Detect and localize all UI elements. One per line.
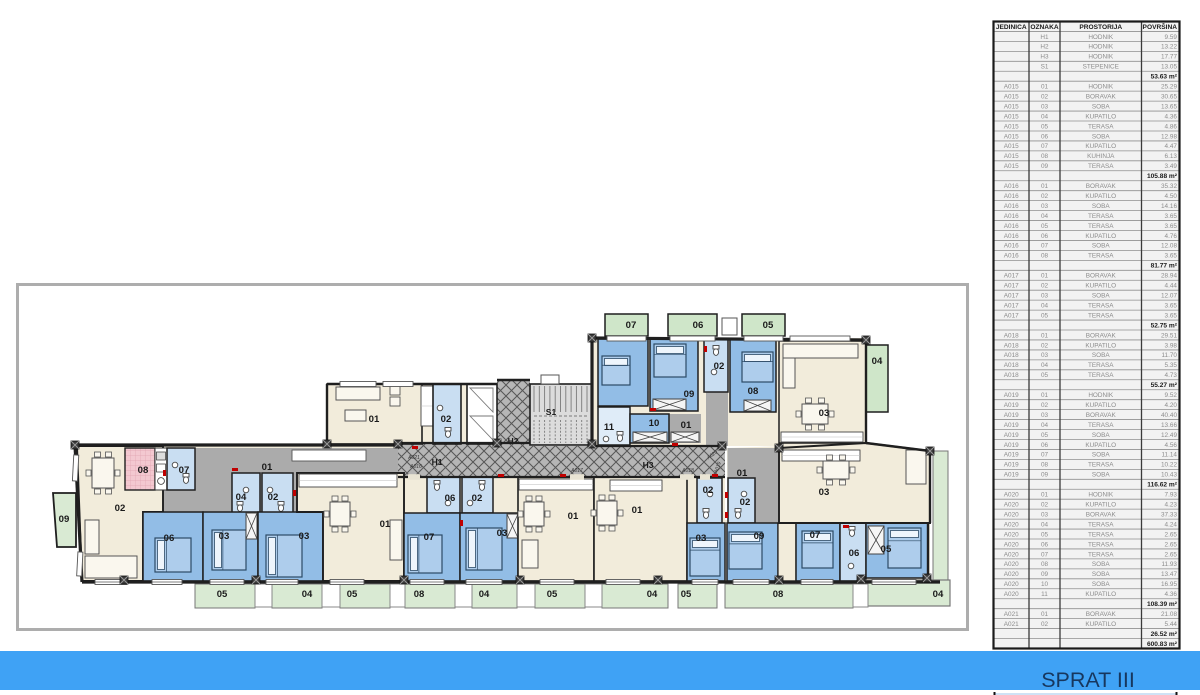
svg-text:12.49: 12.49 — [1161, 432, 1177, 439]
svg-text:A016: A016 — [1004, 243, 1019, 250]
svg-text:HODNIK: HODNIK — [1088, 392, 1114, 399]
svg-text:03: 03 — [1041, 511, 1049, 518]
svg-text:4.56: 4.56 — [1165, 442, 1178, 449]
svg-text:A021: A021 — [1004, 621, 1019, 628]
svg-text:7.93: 7.93 — [1165, 492, 1178, 499]
svg-text:53.63 m²: 53.63 m² — [1151, 74, 1178, 81]
svg-text:TERASA: TERASA — [1088, 312, 1114, 319]
svg-text:02: 02 — [1041, 93, 1049, 100]
svg-text:TERASA: TERASA — [1088, 253, 1114, 260]
svg-text:5.44: 5.44 — [1165, 621, 1178, 628]
svg-text:A020: A020 — [1004, 561, 1019, 568]
svg-text:TERASA: TERASA — [1088, 372, 1114, 379]
svg-text:KUPATILO: KUPATILO — [1085, 143, 1116, 150]
svg-text:A019: A019 — [1004, 412, 1019, 419]
svg-text:25.29: 25.29 — [1161, 84, 1177, 91]
svg-text:BORAVAK: BORAVAK — [1086, 183, 1117, 190]
svg-text:01: 01 — [1041, 492, 1049, 499]
svg-text:02: 02 — [1041, 621, 1049, 628]
svg-text:35.32: 35.32 — [1161, 183, 1177, 190]
svg-text:4.36: 4.36 — [1165, 113, 1178, 120]
svg-text:A018: A018 — [1004, 342, 1019, 349]
svg-text:TERASA: TERASA — [1088, 521, 1114, 528]
svg-text:SOBA: SOBA — [1092, 472, 1110, 479]
svg-text:02: 02 — [1041, 283, 1049, 290]
svg-text:01: 01 — [1041, 332, 1049, 339]
svg-text:POVRŠINA: POVRŠINA — [1143, 22, 1178, 31]
svg-text:A015: A015 — [1004, 163, 1019, 170]
svg-text:BORAVAK: BORAVAK — [1086, 332, 1117, 339]
svg-text:A016: A016 — [1004, 193, 1019, 200]
svg-text:A016: A016 — [1004, 213, 1019, 220]
svg-text:KUPATILO: KUPATILO — [1085, 113, 1116, 120]
svg-text:TERASA: TERASA — [1088, 223, 1114, 230]
svg-text:52.75 m²: 52.75 m² — [1151, 322, 1178, 329]
svg-text:A020: A020 — [1004, 511, 1019, 518]
svg-text:HODNIK: HODNIK — [1088, 84, 1114, 91]
svg-text:3.65: 3.65 — [1165, 213, 1178, 220]
svg-text:05: 05 — [1041, 531, 1049, 538]
svg-text:05: 05 — [1041, 432, 1049, 439]
svg-text:BORAVAK: BORAVAK — [1086, 273, 1117, 280]
svg-text:A016: A016 — [1004, 253, 1019, 260]
svg-text:A016: A016 — [1004, 223, 1019, 230]
svg-text:SOBA: SOBA — [1092, 452, 1110, 459]
svg-text:A019: A019 — [1004, 462, 1019, 469]
svg-text:KUPATILO: KUPATILO — [1085, 621, 1116, 628]
svg-text:05: 05 — [1041, 223, 1049, 230]
svg-text:9.52: 9.52 — [1165, 392, 1178, 399]
svg-text:105.88 m²: 105.88 m² — [1147, 173, 1178, 180]
svg-text:4.20: 4.20 — [1165, 402, 1178, 409]
svg-text:SOBA: SOBA — [1092, 561, 1110, 568]
svg-text:6.13: 6.13 — [1165, 153, 1178, 160]
svg-text:BORAVAK: BORAVAK — [1086, 611, 1117, 618]
svg-text:13.47: 13.47 — [1161, 571, 1177, 578]
svg-text:13.65: 13.65 — [1161, 103, 1177, 110]
svg-text:SOBA: SOBA — [1092, 103, 1110, 110]
svg-text:01: 01 — [1041, 611, 1049, 618]
svg-text:07: 07 — [1041, 143, 1049, 150]
svg-text:A019: A019 — [1004, 432, 1019, 439]
svg-text:12.08: 12.08 — [1161, 243, 1177, 250]
svg-text:28.94: 28.94 — [1161, 273, 1177, 280]
svg-text:TERASA: TERASA — [1088, 362, 1114, 369]
svg-text:04: 04 — [1041, 213, 1049, 220]
svg-text:A019: A019 — [1004, 402, 1019, 409]
svg-text:A018: A018 — [1004, 372, 1019, 379]
svg-text:07: 07 — [1041, 551, 1049, 558]
svg-text:A021: A021 — [1004, 611, 1019, 618]
svg-text:KUPATILO: KUPATILO — [1085, 233, 1116, 240]
svg-text:40.40: 40.40 — [1161, 412, 1177, 419]
svg-text:13.66: 13.66 — [1161, 422, 1177, 429]
svg-text:A018: A018 — [1004, 332, 1019, 339]
svg-text:37.33: 37.33 — [1161, 511, 1177, 518]
svg-text:A016: A016 — [1004, 203, 1019, 210]
svg-text:A020: A020 — [1004, 521, 1019, 528]
svg-text:108.39 m²: 108.39 m² — [1147, 601, 1178, 608]
svg-text:A020: A020 — [1004, 492, 1019, 499]
svg-text:SOBA: SOBA — [1092, 293, 1110, 300]
svg-text:04: 04 — [1041, 113, 1049, 120]
svg-text:A020: A020 — [1004, 581, 1019, 588]
svg-text:TERASA: TERASA — [1088, 462, 1114, 469]
svg-text:A015: A015 — [1004, 123, 1019, 130]
svg-text:16.95: 16.95 — [1161, 581, 1177, 588]
svg-text:KUPATILO: KUPATILO — [1085, 591, 1116, 598]
svg-text:KUPATILO: KUPATILO — [1085, 283, 1116, 290]
svg-text:02: 02 — [1041, 402, 1049, 409]
svg-text:06: 06 — [1041, 133, 1049, 140]
svg-text:01: 01 — [1041, 392, 1049, 399]
svg-text:PROSTORIJA: PROSTORIJA — [1079, 24, 1122, 31]
svg-text:KUHINJA: KUHINJA — [1087, 153, 1115, 160]
svg-text:SOBA: SOBA — [1092, 571, 1110, 578]
svg-text:3.65: 3.65 — [1165, 312, 1178, 319]
svg-text:HODNIK: HODNIK — [1088, 34, 1114, 41]
svg-text:08: 08 — [1041, 462, 1049, 469]
svg-text:BORAVAK: BORAVAK — [1086, 412, 1117, 419]
svg-text:03: 03 — [1041, 103, 1049, 110]
svg-text:01: 01 — [1041, 183, 1049, 190]
svg-text:HODNIK: HODNIK — [1088, 492, 1114, 499]
svg-text:4.86: 4.86 — [1165, 123, 1178, 130]
svg-text:SOBA: SOBA — [1092, 432, 1110, 439]
svg-text:05: 05 — [1041, 372, 1049, 379]
svg-text:A020: A020 — [1004, 551, 1019, 558]
svg-text:A016: A016 — [1004, 183, 1019, 190]
svg-text:03: 03 — [1041, 203, 1049, 210]
svg-text:BORAVAK: BORAVAK — [1086, 511, 1117, 518]
svg-text:11.93: 11.93 — [1161, 561, 1177, 568]
svg-text:SOBA: SOBA — [1092, 243, 1110, 250]
svg-text:A017: A017 — [1004, 302, 1019, 309]
svg-text:04: 04 — [1041, 362, 1049, 369]
svg-text:TERASA: TERASA — [1088, 541, 1114, 548]
svg-text:01: 01 — [1041, 273, 1049, 280]
svg-text:9.59: 9.59 — [1165, 34, 1178, 41]
svg-text:21.08: 21.08 — [1161, 611, 1177, 618]
svg-text:A015: A015 — [1004, 153, 1019, 160]
svg-text:26.52 m²: 26.52 m² — [1151, 631, 1178, 638]
svg-text:06: 06 — [1041, 233, 1049, 240]
svg-text:02: 02 — [1041, 501, 1049, 508]
svg-text:10.22: 10.22 — [1161, 462, 1177, 469]
svg-text:02: 02 — [1041, 193, 1049, 200]
svg-text:04: 04 — [1041, 422, 1049, 429]
svg-text:A015: A015 — [1004, 103, 1019, 110]
svg-text:4.50: 4.50 — [1165, 193, 1178, 200]
svg-text:116.62 m²: 116.62 m² — [1147, 482, 1177, 489]
svg-text:08: 08 — [1041, 561, 1049, 568]
svg-text:KUPATILO: KUPATILO — [1085, 342, 1116, 349]
svg-text:3.65: 3.65 — [1165, 253, 1178, 260]
svg-text:09: 09 — [1041, 163, 1049, 170]
svg-text:12.98: 12.98 — [1161, 133, 1177, 140]
svg-text:A015: A015 — [1004, 84, 1019, 91]
svg-text:A018: A018 — [1004, 352, 1019, 359]
svg-text:SPRAT III: SPRAT III — [1041, 668, 1135, 692]
svg-text:05: 05 — [1041, 123, 1049, 130]
svg-text:81.77 m²: 81.77 m² — [1151, 263, 1178, 270]
svg-text:10: 10 — [1041, 581, 1049, 588]
svg-text:03: 03 — [1041, 352, 1049, 359]
svg-text:12.07: 12.07 — [1161, 293, 1177, 300]
svg-text:11.70: 11.70 — [1161, 352, 1177, 359]
svg-text:SOBA: SOBA — [1092, 352, 1110, 359]
svg-text:07: 07 — [1041, 243, 1049, 250]
svg-text:03: 03 — [1041, 412, 1049, 419]
svg-text:TERASA: TERASA — [1088, 213, 1114, 220]
svg-text:06: 06 — [1041, 442, 1049, 449]
svg-text:H1: H1 — [1040, 34, 1049, 41]
svg-text:2.65: 2.65 — [1165, 531, 1178, 538]
svg-text:A020: A020 — [1004, 541, 1019, 548]
svg-text:TERASA: TERASA — [1088, 531, 1114, 538]
svg-text:A020: A020 — [1004, 531, 1019, 538]
svg-text:H2: H2 — [1040, 44, 1049, 51]
svg-text:3.98: 3.98 — [1165, 342, 1178, 349]
svg-text:11: 11 — [1041, 591, 1048, 598]
svg-text:TERASA: TERASA — [1088, 551, 1114, 558]
svg-text:3.49: 3.49 — [1165, 163, 1178, 170]
svg-text:KUPATILO: KUPATILO — [1085, 442, 1116, 449]
svg-text:06: 06 — [1041, 541, 1049, 548]
svg-text:4.73: 4.73 — [1165, 372, 1178, 379]
svg-text:TERASA: TERASA — [1088, 123, 1114, 130]
svg-text:A017: A017 — [1004, 312, 1019, 319]
svg-text:11.14: 11.14 — [1161, 452, 1177, 459]
svg-text:A015: A015 — [1004, 133, 1019, 140]
svg-text:TERASA: TERASA — [1088, 302, 1114, 309]
svg-text:A019: A019 — [1004, 392, 1019, 399]
svg-text:4.24: 4.24 — [1165, 521, 1178, 528]
svg-text:JEDINICA: JEDINICA — [996, 24, 1027, 31]
svg-text:A017: A017 — [1004, 283, 1019, 290]
svg-text:A019: A019 — [1004, 472, 1019, 479]
svg-text:HODNIK: HODNIK — [1088, 54, 1114, 61]
svg-text:A019: A019 — [1004, 452, 1019, 459]
svg-text:A017: A017 — [1004, 273, 1019, 280]
svg-text:02: 02 — [1041, 342, 1049, 349]
svg-text:S1: S1 — [1041, 64, 1049, 71]
svg-text:A015: A015 — [1004, 93, 1019, 100]
svg-text:H3: H3 — [1040, 54, 1049, 61]
svg-text:A019: A019 — [1004, 442, 1019, 449]
svg-text:3.65: 3.65 — [1165, 302, 1178, 309]
svg-text:A016: A016 — [1004, 233, 1019, 240]
svg-text:SOBA: SOBA — [1092, 581, 1110, 588]
svg-text:KUPATILO: KUPATILO — [1085, 193, 1116, 200]
svg-text:A020: A020 — [1004, 501, 1019, 508]
svg-text:HODNIK: HODNIK — [1088, 44, 1114, 51]
svg-text:4.36: 4.36 — [1165, 591, 1178, 598]
svg-text:SOBA: SOBA — [1092, 133, 1110, 140]
svg-text:13.05: 13.05 — [1161, 64, 1177, 71]
svg-text:4.44: 4.44 — [1165, 283, 1178, 290]
svg-text:05: 05 — [1041, 312, 1049, 319]
svg-text:A019: A019 — [1004, 422, 1019, 429]
svg-text:BORAVAK: BORAVAK — [1086, 93, 1117, 100]
svg-text:09: 09 — [1041, 472, 1049, 479]
svg-text:4.47: 4.47 — [1165, 143, 1178, 150]
svg-text:KUPATILO: KUPATILO — [1085, 402, 1116, 409]
svg-text:30.65: 30.65 — [1161, 93, 1177, 100]
svg-text:600.83 m²: 600.83 m² — [1147, 641, 1178, 648]
svg-text:55.27 m²: 55.27 m² — [1151, 382, 1178, 389]
svg-text:A020: A020 — [1004, 571, 1019, 578]
svg-text:04: 04 — [1041, 521, 1049, 528]
svg-text:10.43: 10.43 — [1161, 472, 1177, 479]
svg-text:13.22: 13.22 — [1161, 44, 1177, 51]
svg-text:A015: A015 — [1004, 113, 1019, 120]
svg-text:TERASA: TERASA — [1088, 422, 1114, 429]
svg-text:2.65: 2.65 — [1165, 551, 1178, 558]
svg-text:OZNAKA: OZNAKA — [1030, 24, 1058, 31]
svg-text:A018: A018 — [1004, 362, 1019, 369]
svg-text:4.23: 4.23 — [1165, 501, 1178, 508]
svg-text:09: 09 — [1041, 571, 1049, 578]
svg-text:4.76: 4.76 — [1165, 233, 1178, 240]
svg-text:08: 08 — [1041, 253, 1049, 260]
svg-text:KUPATILO: KUPATILO — [1085, 501, 1116, 508]
svg-text:29.51: 29.51 — [1161, 332, 1177, 339]
svg-text:17.77: 17.77 — [1161, 54, 1177, 61]
svg-text:SOBA: SOBA — [1092, 203, 1110, 210]
svg-text:14.16: 14.16 — [1161, 203, 1177, 210]
svg-text:2.65: 2.65 — [1165, 541, 1178, 548]
svg-text:5.35: 5.35 — [1165, 362, 1178, 369]
svg-text:3.65: 3.65 — [1165, 223, 1178, 230]
svg-text:01: 01 — [1041, 84, 1049, 91]
svg-text:08: 08 — [1041, 153, 1049, 160]
svg-text:A015: A015 — [1004, 143, 1019, 150]
svg-text:A017: A017 — [1004, 293, 1019, 300]
svg-text:03: 03 — [1041, 293, 1049, 300]
svg-text:A020: A020 — [1004, 591, 1019, 598]
svg-text:STEPENICE: STEPENICE — [1083, 64, 1119, 71]
svg-text:04: 04 — [1041, 302, 1049, 309]
svg-text:07: 07 — [1041, 452, 1049, 459]
svg-text:TERASA: TERASA — [1088, 163, 1114, 170]
